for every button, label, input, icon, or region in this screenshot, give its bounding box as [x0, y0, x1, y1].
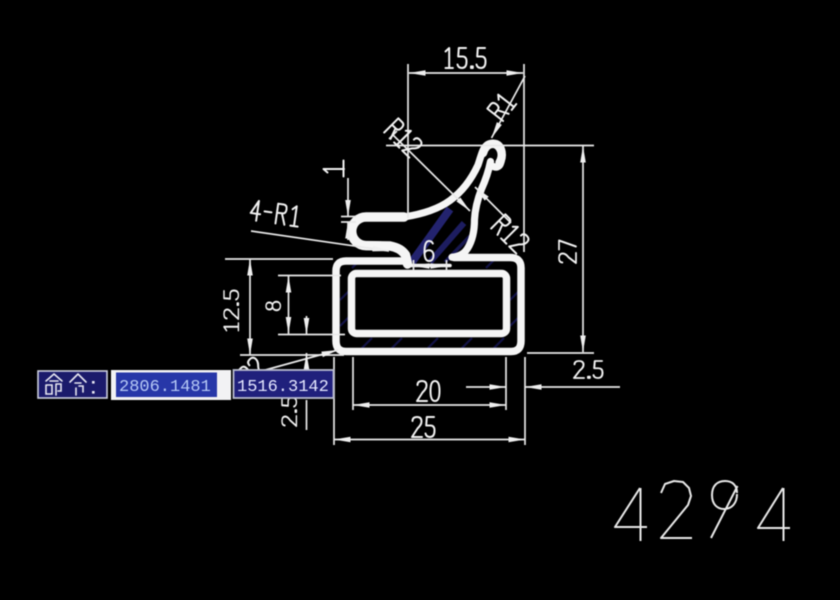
svg-text:1516.3142: 1516.3142 [237, 378, 329, 397]
svg-text:2806.1481: 2806.1481 [119, 378, 211, 397]
